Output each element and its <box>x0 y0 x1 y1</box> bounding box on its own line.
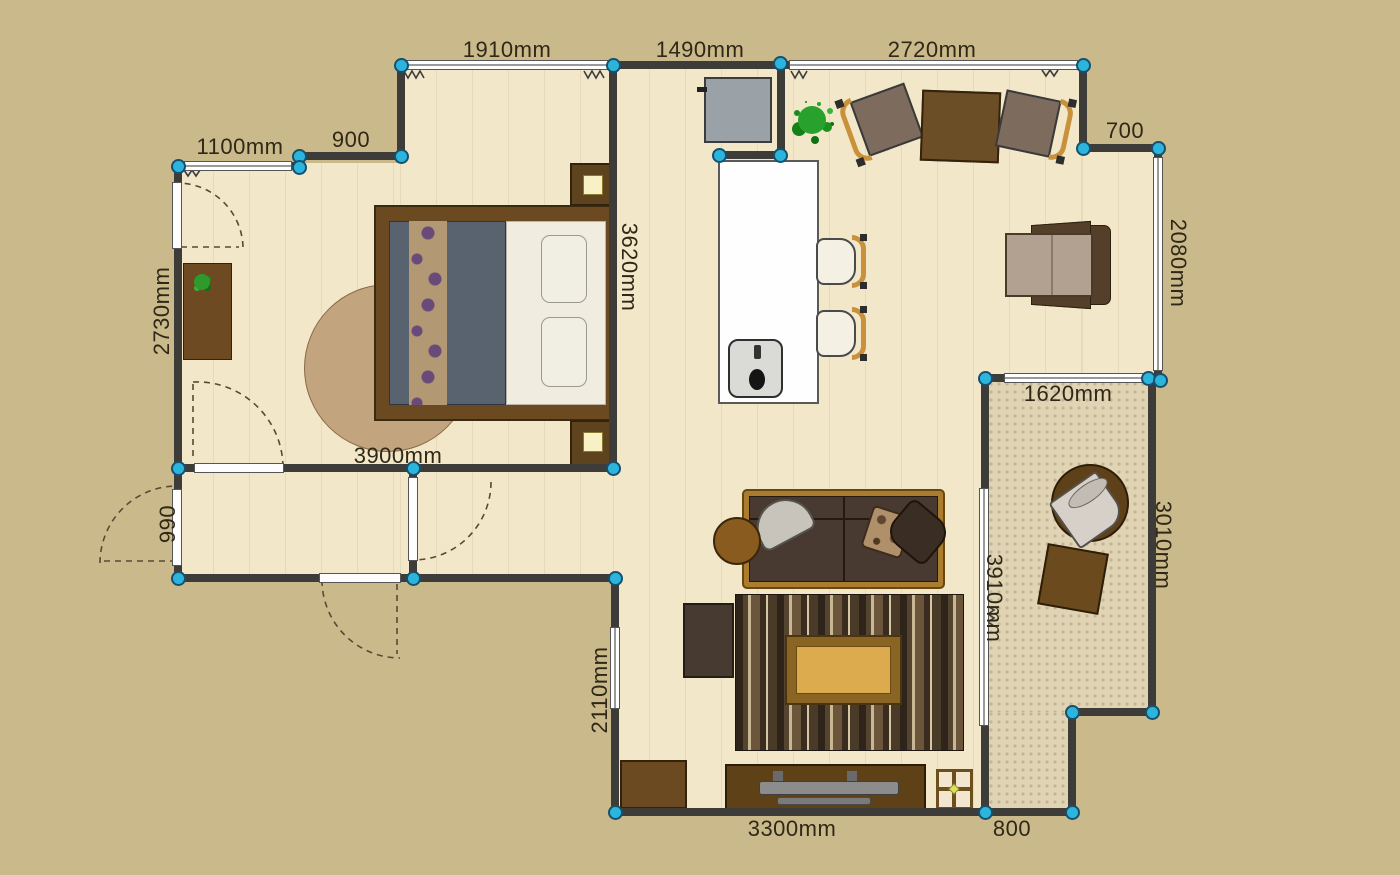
dimension-label: 1620mm <box>1024 381 1113 407</box>
wall[interactable] <box>1068 708 1156 716</box>
corner-marker[interactable] <box>406 571 421 586</box>
door[interactable] <box>194 463 284 473</box>
dimension-label: 3910mm <box>981 554 1007 643</box>
dimension-label: 3620mm <box>616 223 642 312</box>
dimension-label: 2730mm <box>149 267 175 356</box>
dimension-label: 3900mm <box>354 443 443 469</box>
dimension-label: 800 <box>993 816 1031 842</box>
wall[interactable] <box>397 61 405 160</box>
dimension-label: 990 <box>155 505 181 543</box>
corner-marker[interactable] <box>978 371 993 386</box>
window[interactable] <box>184 161 292 171</box>
wall[interactable] <box>1079 61 1087 152</box>
dimension-label: 2080mm <box>1165 219 1191 308</box>
corner-marker[interactable] <box>773 148 788 163</box>
radiator-mark <box>404 71 424 78</box>
door[interactable] <box>172 182 182 249</box>
corner-marker[interactable] <box>606 58 621 73</box>
door-swing-arc <box>413 482 491 560</box>
corner-marker[interactable] <box>608 805 623 820</box>
door-swing-arc <box>322 580 400 658</box>
radiator-mark <box>1042 70 1058 76</box>
corner-marker[interactable] <box>1065 805 1080 820</box>
corner-marker[interactable] <box>978 805 993 820</box>
corner-marker[interactable] <box>773 56 788 71</box>
dimension-label: 2110mm <box>587 647 613 734</box>
corner-marker[interactable] <box>1145 705 1160 720</box>
wall[interactable] <box>1079 144 1161 152</box>
corner-marker[interactable] <box>171 571 186 586</box>
corner-marker[interactable] <box>394 58 409 73</box>
corner-marker[interactable] <box>608 571 623 586</box>
dimension-label: 900 <box>332 127 370 153</box>
window[interactable] <box>1153 157 1163 371</box>
wall[interactable] <box>295 152 405 160</box>
radiator-mark <box>584 71 604 78</box>
corner-marker[interactable] <box>1065 705 1080 720</box>
dimension-label: 1910mm <box>463 37 552 63</box>
door[interactable] <box>319 573 401 583</box>
dimension-label: 3010mm <box>1150 501 1176 590</box>
radiator-mark <box>791 71 807 78</box>
dimension-label: 2720mm <box>888 37 977 63</box>
door[interactable] <box>408 477 418 561</box>
door-swing-layer <box>0 0 1400 875</box>
corner-marker[interactable] <box>171 461 186 476</box>
corner-marker[interactable] <box>1076 141 1091 156</box>
corner-marker[interactable] <box>606 461 621 476</box>
wall[interactable] <box>1068 708 1076 816</box>
door-swing-arc <box>193 382 283 466</box>
corner-marker[interactable] <box>712 148 727 163</box>
corner-marker[interactable] <box>1151 141 1166 156</box>
dimension-label: 1490mm <box>656 37 745 63</box>
wall[interactable] <box>777 61 785 157</box>
door-swing-arc <box>179 183 243 247</box>
structure-layer: 1910mm1490mm2720mm1100mm9007002730mm9902… <box>0 0 1400 875</box>
wall[interactable] <box>612 808 1076 816</box>
dimension-label: 3300mm <box>748 816 837 842</box>
floor-plan-canvas: 1910mm1490mm2720mm1100mm9007002730mm9902… <box>0 0 1400 875</box>
corner-marker[interactable] <box>171 159 186 174</box>
dimension-label: 1100mm <box>197 134 284 160</box>
corner-marker[interactable] <box>406 461 421 476</box>
corner-marker[interactable] <box>1076 58 1091 73</box>
corner-marker[interactable] <box>394 149 409 164</box>
corner-marker[interactable] <box>1153 373 1168 388</box>
dimension-label: 700 <box>1106 118 1144 144</box>
corner-marker[interactable] <box>292 160 307 175</box>
